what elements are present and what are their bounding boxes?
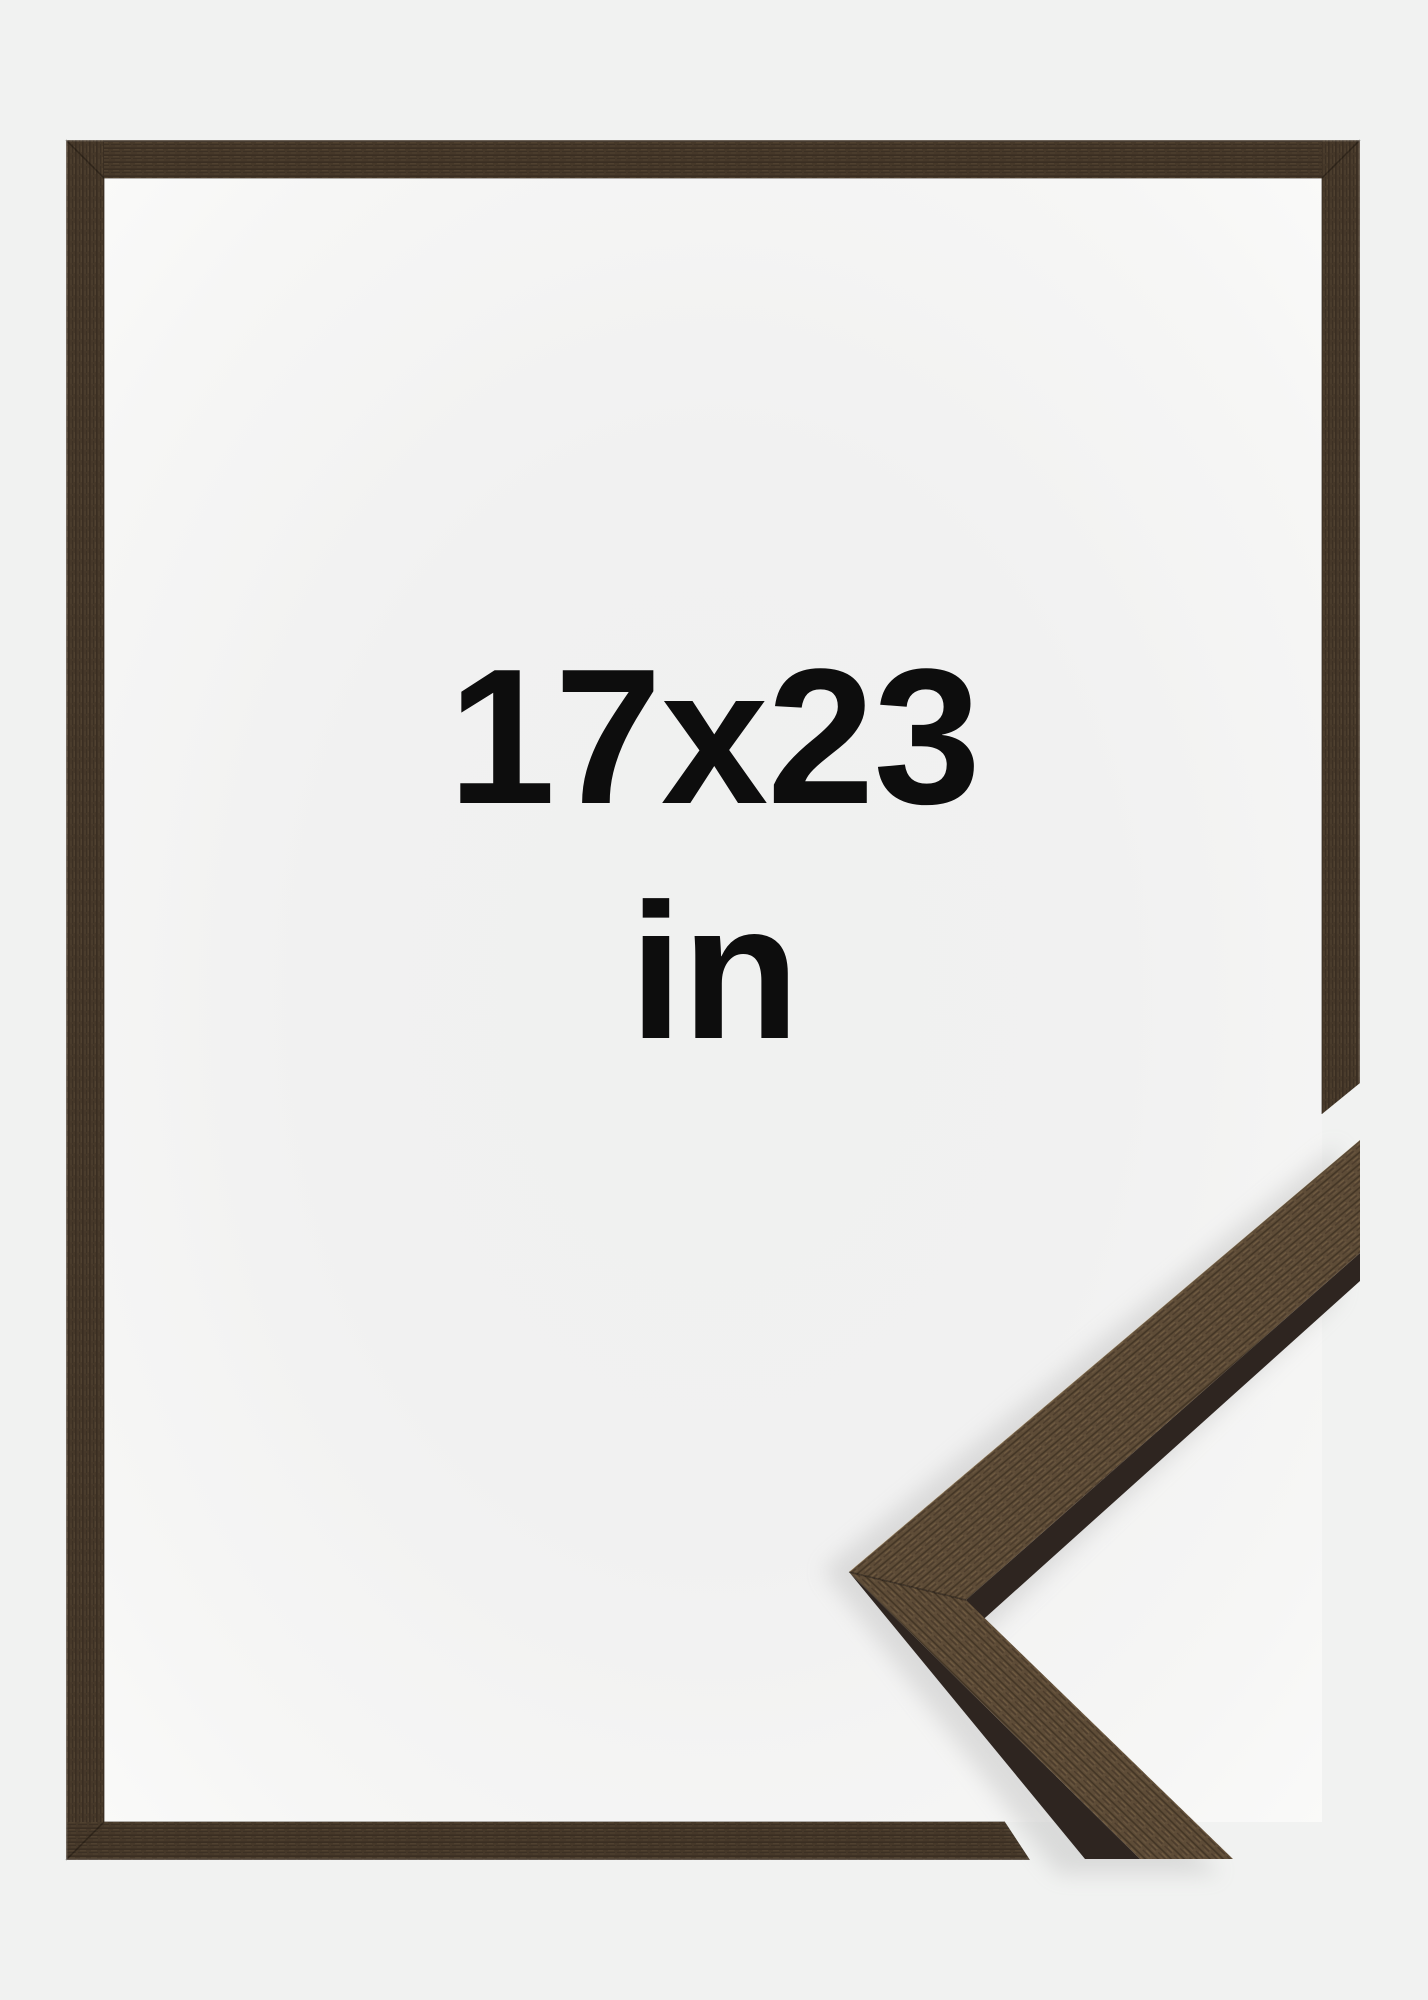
frame-right-bar	[1322, 140, 1360, 1114]
size-label: 17x23	[448, 628, 980, 844]
frame-bottom-bar	[66, 1822, 1030, 1860]
frame-left-bar	[66, 140, 104, 1860]
unit-label: in	[629, 863, 799, 1079]
frame-top-bar	[66, 140, 1360, 178]
frame-graphic: 17x23 in	[0, 0, 1428, 2000]
frame-product-image: 17x23 in	[0, 0, 1428, 2000]
